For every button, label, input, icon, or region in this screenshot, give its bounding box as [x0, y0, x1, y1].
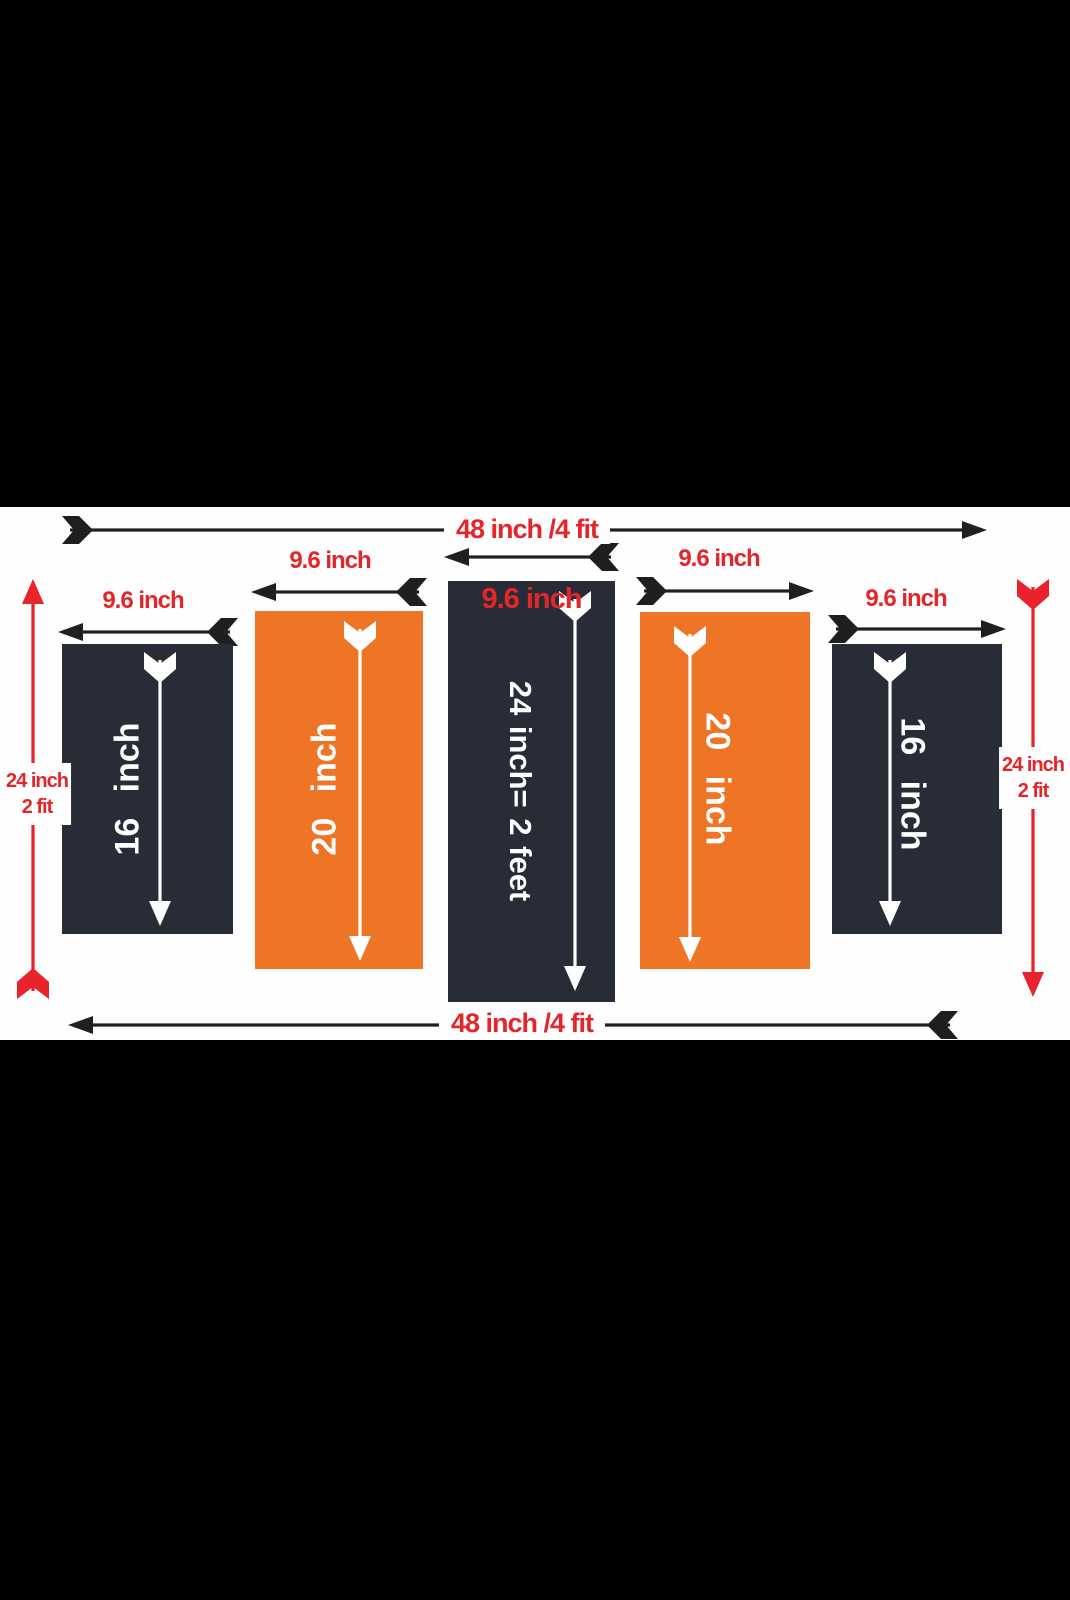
panel-3-length-arrow-icon	[558, 591, 592, 991]
panel-1-width-label: 9.6 inch	[102, 587, 183, 615]
overall-height-label-left: 24 inch 2 fit	[3, 763, 71, 825]
overall-height-label-right: 24 inch 2 fit	[999, 747, 1067, 809]
panel-5-length-label: 16 inch	[893, 717, 932, 850]
panel-2-length-arrow-icon	[343, 621, 377, 961]
panel-1-length-arrow-icon	[143, 652, 177, 926]
panel-4: 20 inch	[640, 612, 810, 969]
letterbox-top	[0, 0, 1070, 507]
panel-5-width-arrow-icon	[828, 614, 1006, 644]
overall-height-label-right-line2: 2 fit	[1002, 778, 1064, 804]
panel-3-width-label: 9.6 inch	[482, 583, 582, 616]
overall-height-label-right-line1: 24 inch	[1002, 752, 1064, 778]
overall-height-label-left-line1: 24 inch	[6, 768, 68, 794]
panel-2-width-arrow-icon	[251, 577, 427, 607]
panel-5: 16 inch	[832, 644, 1002, 934]
panel-4-length-label: 20 inch	[698, 712, 737, 845]
overall-width-label-top: 48 inch /4 fit	[444, 514, 610, 544]
panel-3-width-arrow-icon	[444, 542, 619, 572]
panel-1-length-label: 16 inch	[109, 722, 148, 855]
overall-height-label-left-line2: 2 fit	[6, 794, 68, 820]
panel-layout-artboard: 48 inch /4 fit 48 inch /4 fit 24 inch 2 …	[0, 507, 1070, 1040]
panel-4-width-label: 9.6 inch	[678, 545, 759, 573]
panel-3: 9.6 inch 24 inch= 2 feet	[448, 581, 615, 1002]
panel-2-width-label: 9.6 inch	[289, 547, 370, 575]
panel-5-width-label: 9.6 inch	[865, 585, 946, 613]
panel-3-length-label: 24 inch= 2 feet	[502, 681, 538, 902]
overall-width-label-bottom: 48 inch /4 fit	[439, 1008, 605, 1038]
panel-1-width-arrow-icon	[58, 617, 238, 647]
panel-4-width-arrow-icon	[636, 576, 814, 606]
panel-2: 20 inch	[255, 611, 423, 969]
letterbox-bottom	[0, 1040, 1070, 1600]
panel-1: 16 inch	[62, 644, 233, 934]
diagram-canvas: 48 inch /4 fit 48 inch /4 fit 24 inch 2 …	[0, 0, 1070, 1600]
panel-2-length-label: 20 inch	[306, 722, 345, 855]
